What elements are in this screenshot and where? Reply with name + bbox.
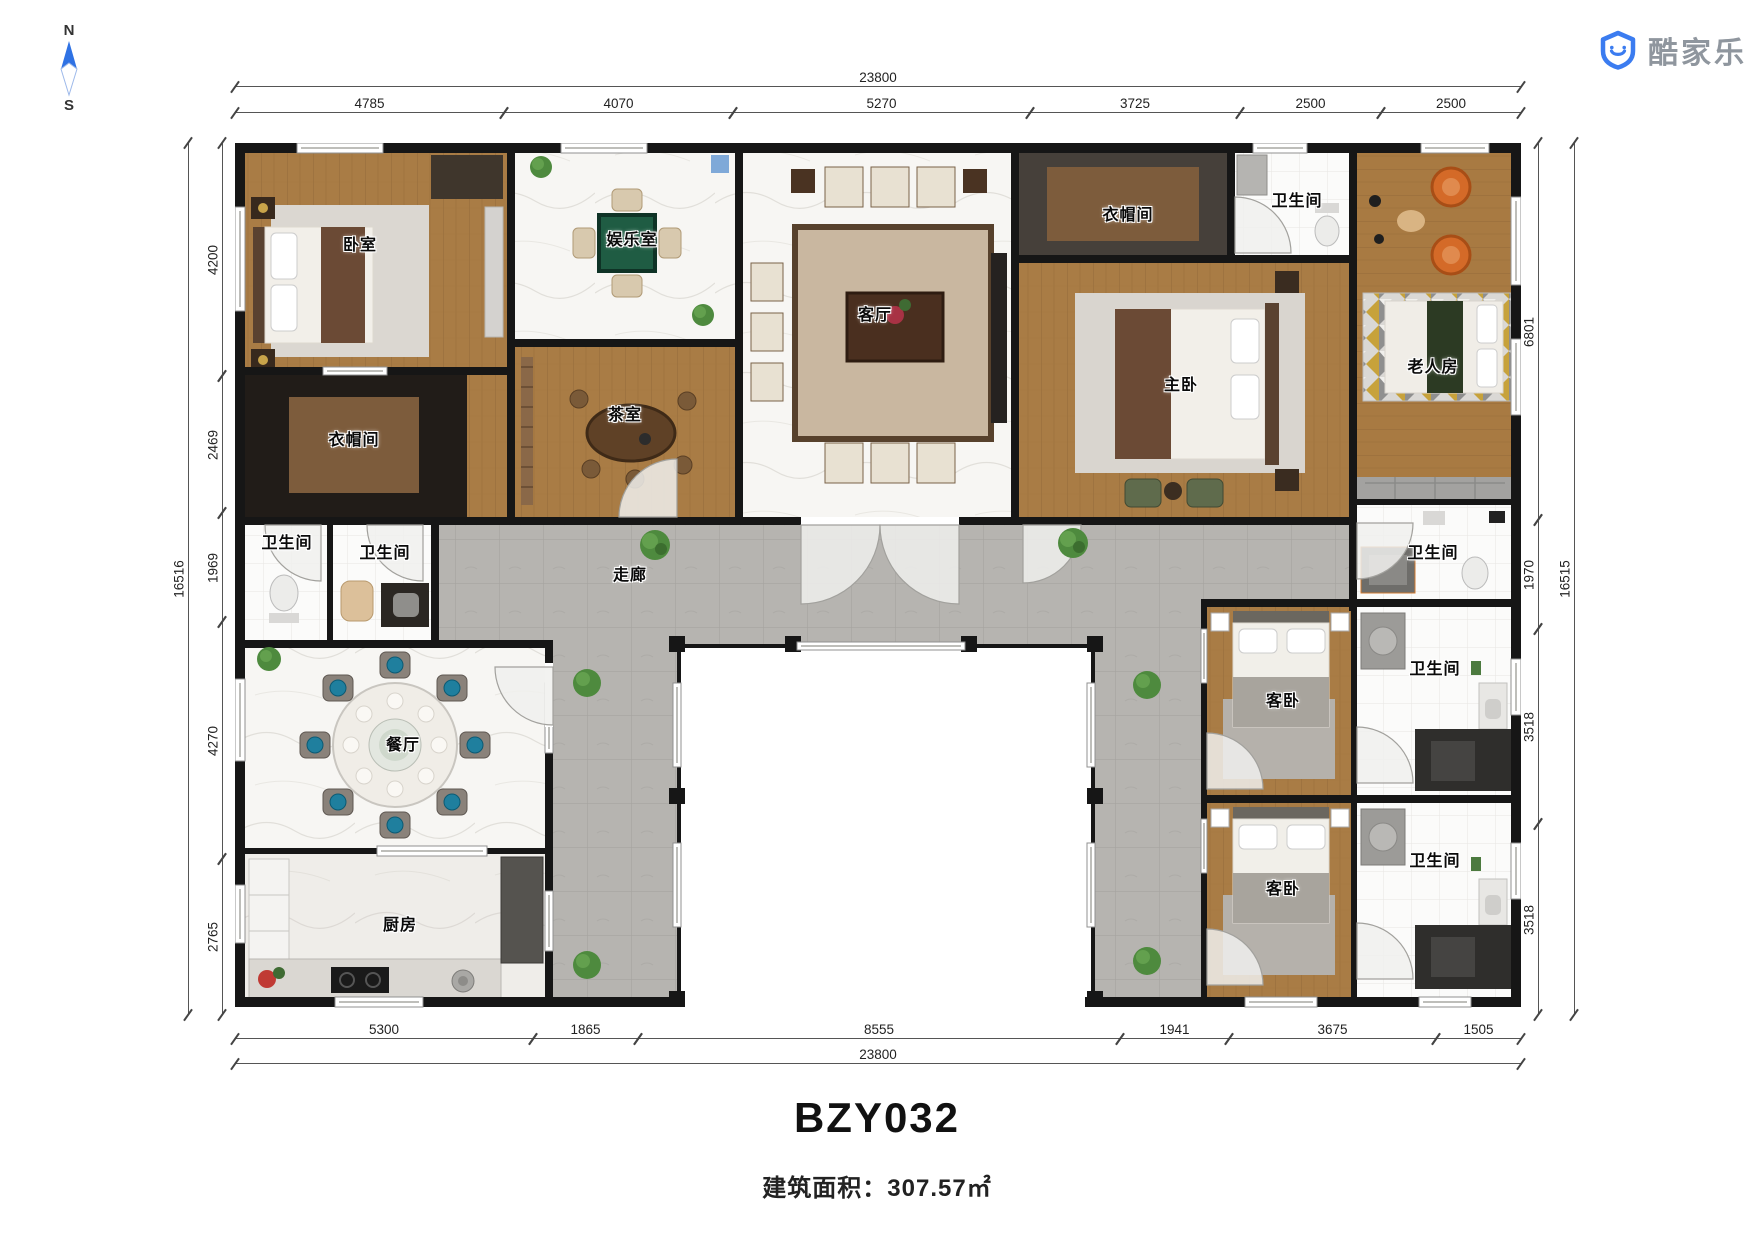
dim-right-total: 16515 <box>1574 143 1575 1015</box>
dim-bottom-seg-1: 1865 <box>533 1038 638 1039</box>
dim-top-seg-1: 4070 <box>504 112 733 113</box>
brand-name: 酷家乐 <box>1648 28 1747 72</box>
dim-left-seg-3: 4270 <box>222 622 223 859</box>
compass: N S <box>52 22 86 114</box>
dim-top-seg-2: 5270 <box>733 112 1030 113</box>
dim-bottom-seg-4: 3675 <box>1229 1038 1436 1039</box>
dim-top-seg-4: 2500 <box>1240 112 1381 113</box>
dim-bottom-seg-2: 8555 <box>638 1038 1120 1039</box>
dim-left-total: 16516 <box>188 143 189 1015</box>
room-label-bath-right-mid: 卫生间 <box>1407 539 1458 563</box>
room-label-living-room: 客厅 <box>858 301 892 325</box>
dim-top-seg-3: 3725 <box>1030 112 1240 113</box>
plan-title: BZY032 <box>0 1094 1754 1142</box>
dim-left-seg-2: 1969 <box>222 513 223 622</box>
compass-north-label: N <box>64 22 75 39</box>
dim-right-seg-3: 3518 <box>1538 824 1539 1015</box>
room-label-bath-right-1: 卫生间 <box>1409 655 1460 679</box>
room-label-bath-top-right: 卫生间 <box>1271 187 1322 211</box>
room-label-tea-room: 茶室 <box>608 401 642 425</box>
room-label-guest-2: 客卧 <box>1266 875 1300 899</box>
dim-left-seg-4: 2765 <box>222 859 223 1015</box>
compass-south-label: S <box>64 97 74 114</box>
dim-bottom-seg-0: 5300 <box>235 1038 533 1039</box>
room-label-master-bedroom: 主卧 <box>1164 371 1198 395</box>
room-label-cloakroom-right: 衣帽间 <box>1102 201 1153 225</box>
dim-right-seg-0: 6801 <box>1538 143 1539 520</box>
bathroom-left-1-fixtures <box>269 575 299 623</box>
room-label-dining-room: 餐厅 <box>386 731 420 755</box>
room-label-guest-1: 客卧 <box>1266 687 1300 711</box>
dim-bottom-seg-3: 1941 <box>1120 1038 1229 1039</box>
plan-area-label: 建筑面积：307.57㎡ <box>0 1168 1754 1203</box>
dim-right-seg-1: 1970 <box>1538 520 1539 629</box>
bathroom-left-2-fixtures <box>341 581 429 627</box>
room-label-bath-left-1: 卫生间 <box>261 529 312 553</box>
floorplan: 卧室 衣帽间 娱乐室 茶室 客厅 衣帽间 卫生间 主卧 老人房 卫生间 卫生间 … <box>235 143 1521 1015</box>
kujiale-shield-icon <box>1598 30 1638 70</box>
dim-top-total: 23800 <box>235 86 1521 87</box>
dim-top-seg-0: 4785 <box>235 112 504 113</box>
dim-bottom-seg-5: 1505 <box>1436 1038 1521 1039</box>
room-label-cloakroom-left: 衣帽间 <box>328 426 379 450</box>
room-label-corridor: 走廊 <box>613 561 647 585</box>
dim-bottom-total: 23800 <box>235 1063 1521 1064</box>
compass-needle-icon <box>59 39 79 97</box>
dim-top-seg-5: 2500 <box>1381 112 1521 113</box>
room-label-bath-left-2: 卫生间 <box>359 539 410 563</box>
room-label-bath-right-2: 卫生间 <box>1409 847 1460 871</box>
room-label-entertainment: 娱乐室 <box>606 226 657 250</box>
room-label-kitchen: 厨房 <box>383 911 417 935</box>
brand-logo: 酷家乐 <box>1598 28 1747 72</box>
floorplan-drawing <box>235 143 1521 1015</box>
dim-left-seg-1: 2469 <box>222 376 223 513</box>
room-label-elder-room: 老人房 <box>1407 353 1458 377</box>
room-label-bedroom: 卧室 <box>343 231 377 255</box>
dim-right-seg-2: 3518 <box>1538 629 1539 824</box>
dim-left-seg-0: 4200 <box>222 143 223 376</box>
